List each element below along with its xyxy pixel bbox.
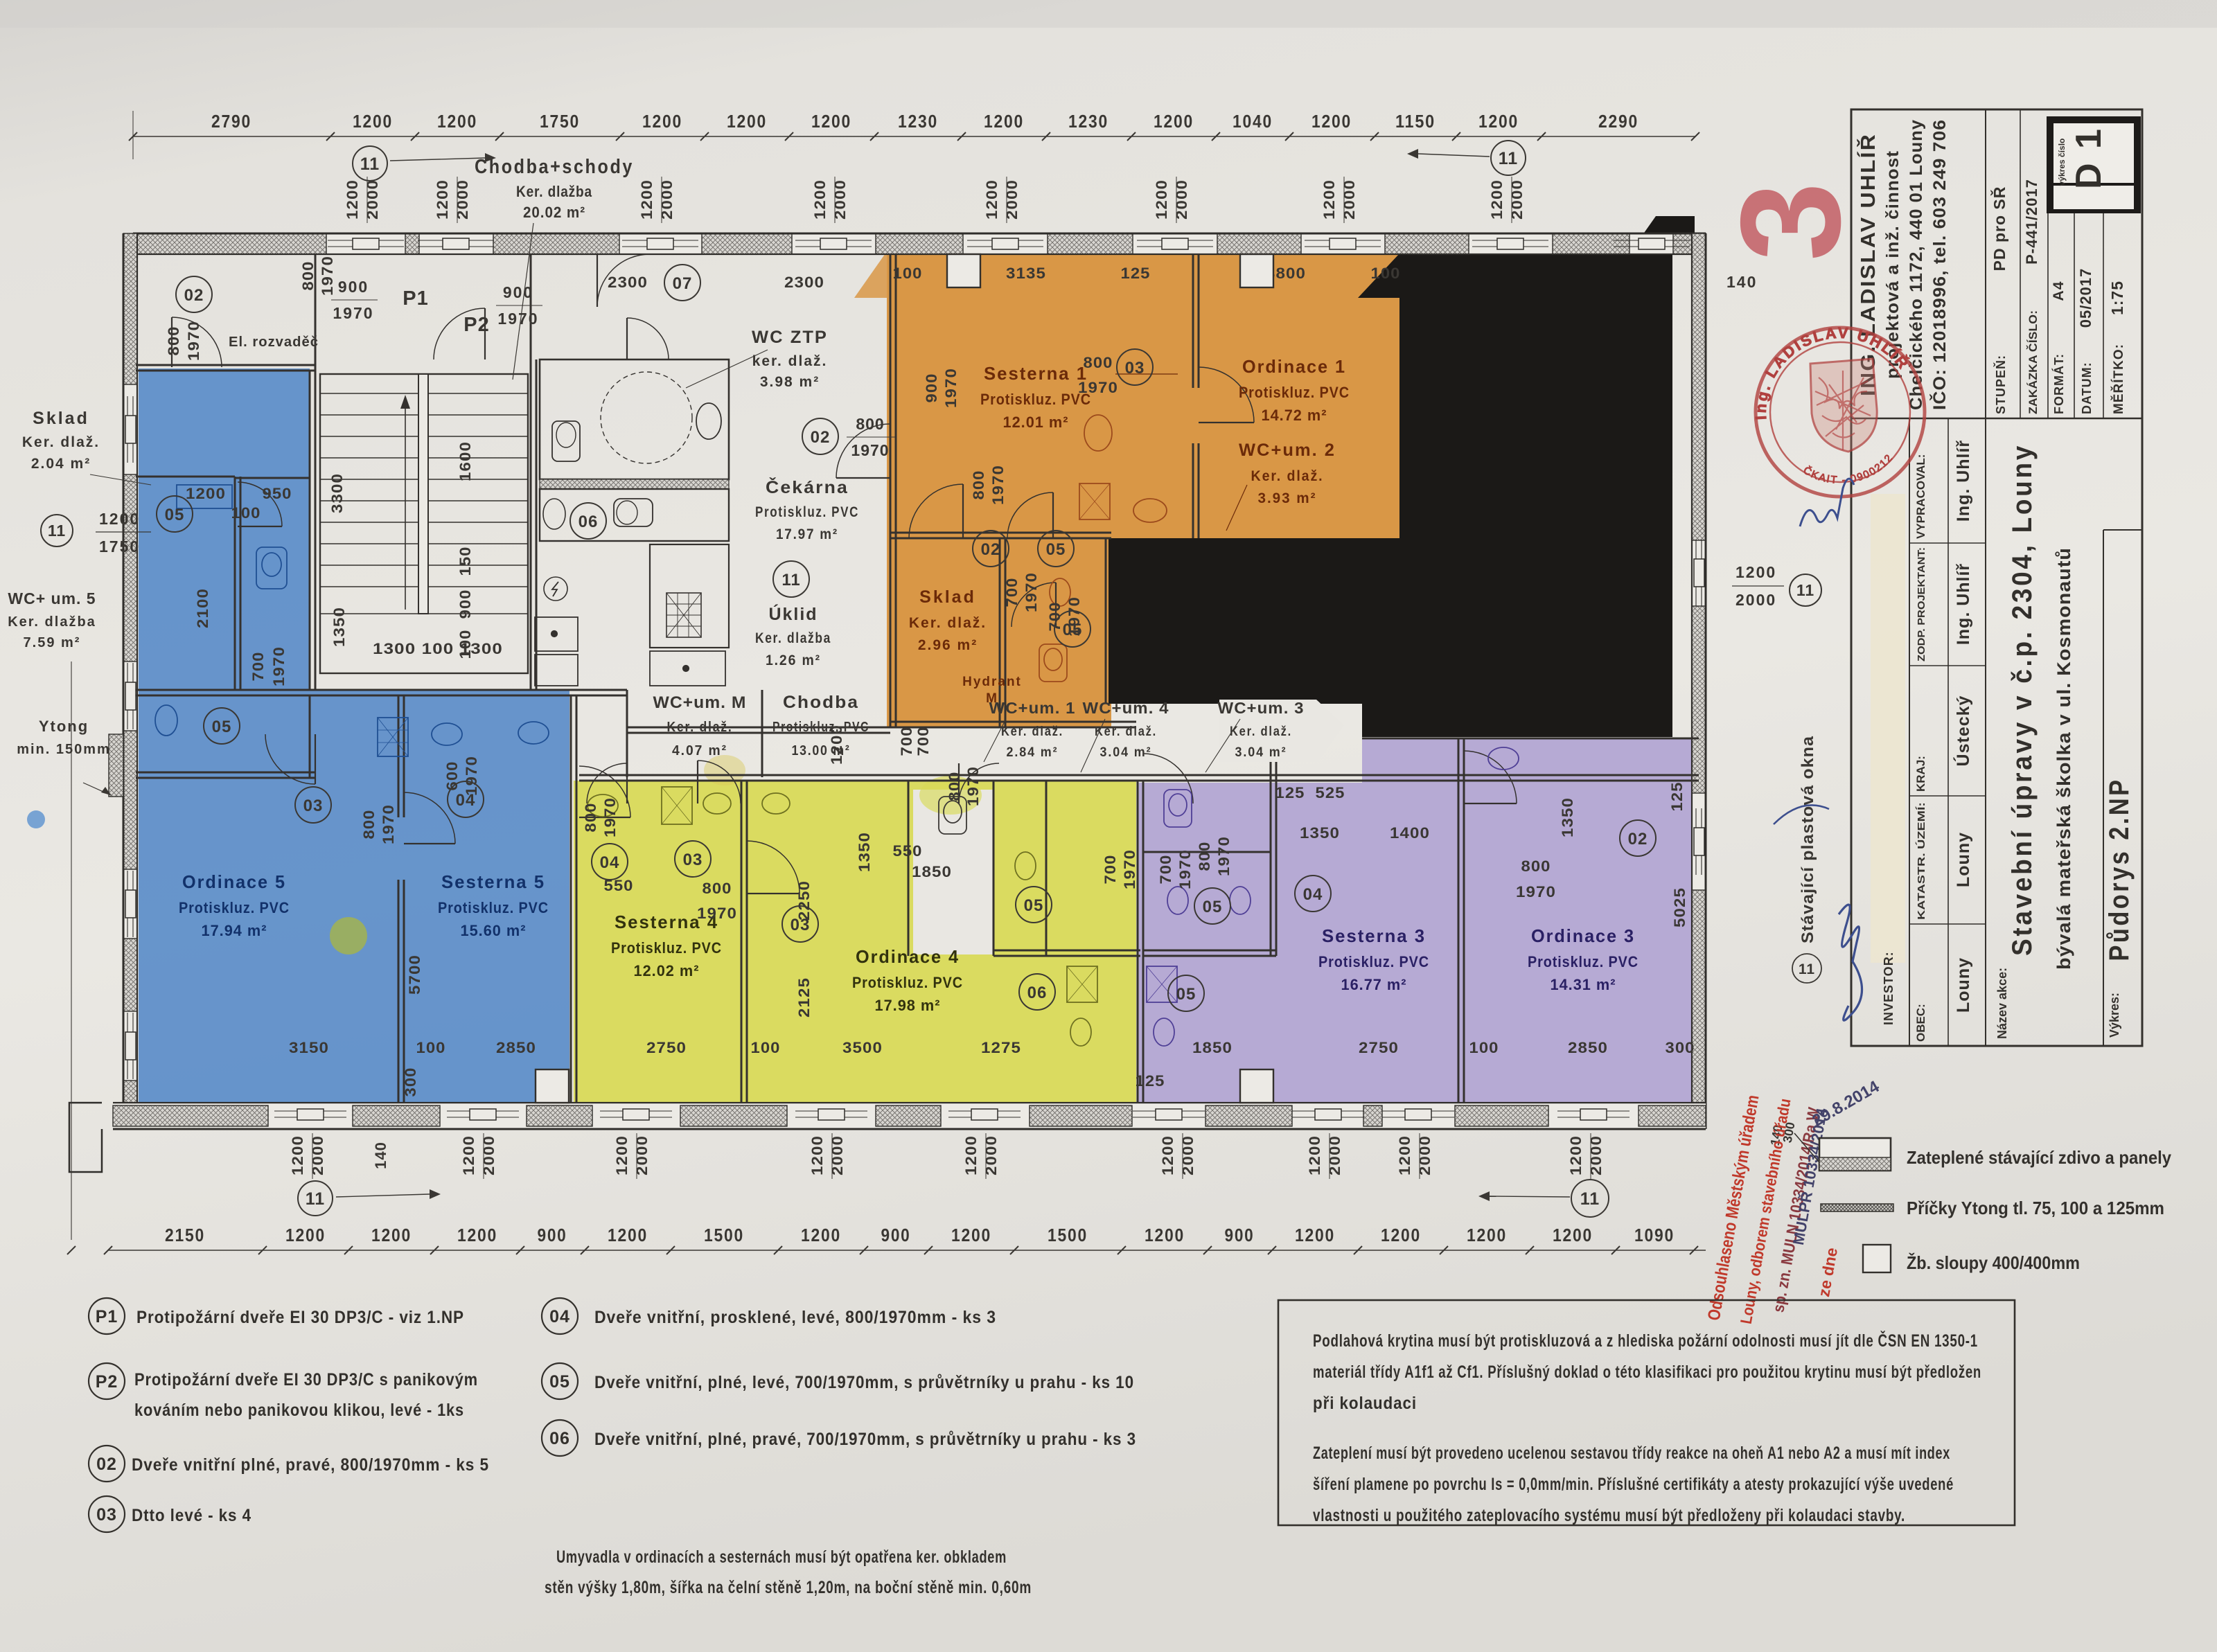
- svg-text:1200: 1200: [1311, 111, 1352, 132]
- svg-text:2000: 2000: [480, 1135, 497, 1175]
- svg-text:1200: 1200: [460, 1135, 477, 1175]
- svg-text:7.59 m²: 7.59 m²: [24, 635, 81, 650]
- svg-text:900: 900: [503, 283, 533, 301]
- svg-text:1970: 1970: [380, 804, 397, 844]
- svg-text:2.96 m²: 2.96 m²: [918, 637, 978, 653]
- svg-text:1200: 1200: [608, 1225, 648, 1245]
- svg-text:03: 03: [1125, 359, 1145, 378]
- svg-text:1350: 1350: [856, 832, 873, 872]
- svg-text:4.07 m²: 4.07 m²: [672, 743, 727, 758]
- svg-text:2850: 2850: [496, 1039, 536, 1056]
- svg-text:900: 900: [538, 1225, 567, 1245]
- svg-text:IČO: 12018996, tel. 603 249 70: IČO: 12018996, tel. 603 249 706: [1929, 119, 1950, 410]
- svg-text:vlastnosti u použitého zateplo: vlastnosti u použitého zateplovacího sys…: [1313, 1506, 1905, 1525]
- svg-text:11: 11: [1580, 1189, 1600, 1209]
- svg-text:1970: 1970: [1078, 379, 1118, 396]
- svg-text:100: 100: [231, 504, 261, 522]
- svg-text:05: 05: [549, 1372, 570, 1392]
- svg-text:Protipožární dveře EI 30 DP3/C: Protipožární dveře EI 30 DP3/C s panikov…: [134, 1370, 478, 1389]
- svg-text:Protipožární dveře EI 30 DP3/C: Protipožární dveře EI 30 DP3/C - viz 1.N…: [136, 1308, 464, 1327]
- svg-text:700: 700: [1157, 855, 1174, 885]
- svg-text:2000: 2000: [1173, 179, 1190, 220]
- svg-text:3: 3: [1711, 182, 1870, 261]
- svg-text:DATUM:: DATUM:: [2080, 362, 2094, 414]
- svg-text:2000: 2000: [633, 1135, 651, 1175]
- svg-text:600: 600: [443, 761, 461, 791]
- svg-text:STUPEŇ:: STUPEŇ:: [1993, 355, 2008, 414]
- svg-text:3500: 3500: [842, 1039, 883, 1056]
- svg-text:Ker. dlaž.: Ker. dlaž.: [1095, 725, 1157, 739]
- svg-text:700: 700: [915, 727, 932, 756]
- svg-text:1200: 1200: [353, 111, 393, 132]
- svg-text:11: 11: [306, 1189, 325, 1209]
- svg-text:D 1: D 1: [2069, 127, 2109, 189]
- svg-text:2250: 2250: [795, 880, 813, 921]
- svg-text:Louny: Louny: [1954, 832, 1973, 887]
- svg-text:02: 02: [184, 286, 204, 305]
- svg-text:2750: 2750: [1359, 1039, 1399, 1056]
- svg-text:2000: 2000: [1003, 179, 1021, 220]
- svg-text:1150: 1150: [1395, 111, 1436, 132]
- svg-text:1200: 1200: [344, 179, 361, 220]
- svg-text:02: 02: [811, 428, 831, 447]
- svg-text:700: 700: [1102, 855, 1119, 885]
- svg-text:11: 11: [1499, 149, 1518, 168]
- svg-text:ING. LADISLAV UHLÍŘ: ING. LADISLAV UHLÍŘ: [1856, 133, 1880, 396]
- svg-text:06: 06: [578, 513, 599, 531]
- svg-text:100: 100: [416, 1039, 446, 1056]
- svg-text:Protiskluz. PVC: Protiskluz. PVC: [1318, 953, 1429, 970]
- svg-text:05: 05: [1203, 898, 1223, 916]
- svg-text:Sklad: Sklad: [33, 409, 89, 428]
- svg-text:125: 125: [1136, 1072, 1165, 1090]
- svg-text:1200: 1200: [99, 510, 140, 528]
- svg-text:1230: 1230: [898, 111, 938, 132]
- svg-text:Příčky Ytong tl. 75, 100 a 125: Příčky Ytong tl. 75, 100 a 125mm: [1907, 1198, 2164, 1218]
- svg-text:1970: 1970: [185, 321, 202, 361]
- svg-text:1230: 1230: [1068, 111, 1108, 132]
- svg-text:07: 07: [673, 274, 693, 293]
- svg-text:800: 800: [1196, 842, 1213, 871]
- svg-text:800: 800: [970, 470, 987, 500]
- svg-text:1350: 1350: [1300, 824, 1340, 842]
- svg-text:700: 700: [898, 727, 915, 756]
- svg-text:1200: 1200: [809, 1135, 826, 1175]
- svg-text:Chodba+schody: Chodba+schody: [475, 156, 634, 178]
- svg-text:12.01 m²: 12.01 m²: [1003, 414, 1069, 431]
- svg-text:1300 100 1300: 1300 100 1300: [373, 640, 503, 657]
- svg-text:2000: 2000: [1735, 591, 1776, 609]
- svg-text:Sesterna 5: Sesterna 5: [441, 871, 545, 892]
- svg-text:5700: 5700: [406, 954, 423, 995]
- svg-text:1200: 1200: [1153, 179, 1170, 220]
- svg-text:06: 06: [1027, 984, 1048, 1002]
- svg-text:Ker. dlaž.: Ker. dlaž.: [1251, 468, 1324, 484]
- svg-text:1090: 1090: [1634, 1225, 1675, 1245]
- svg-text:04: 04: [549, 1307, 570, 1326]
- svg-text:při kolaudaci: při kolaudaci: [1313, 1394, 1417, 1413]
- svg-text:1970: 1970: [851, 441, 889, 459]
- svg-text:3.98 m²: 3.98 m²: [760, 374, 820, 390]
- svg-text:300: 300: [1666, 1039, 1695, 1056]
- svg-text:El. rozvaděč: El. rozvaděč: [229, 335, 319, 350]
- svg-text:2850: 2850: [1568, 1039, 1608, 1056]
- svg-text:Sesterna 3: Sesterna 3: [1322, 925, 1426, 946]
- svg-text:Ker. dlaž.: Ker. dlaž.: [909, 615, 987, 631]
- svg-text:OBEC:: OBEC:: [1914, 1004, 1927, 1042]
- svg-text:1970: 1970: [1215, 836, 1233, 876]
- svg-text:stěn výšky 1,80m, šířka na čel: stěn výšky 1,80m, šířka na čelní stěně 1…: [545, 1578, 1032, 1597]
- svg-text:1200: 1200: [434, 179, 451, 220]
- svg-text:300: 300: [402, 1067, 419, 1097]
- svg-text:1200: 1200: [1321, 179, 1338, 220]
- svg-text:20.02 m²: 20.02 m²: [523, 204, 585, 221]
- svg-text:WC+um. 3: WC+um. 3: [1218, 699, 1305, 717]
- svg-text:MĚŘÍTKO:: MĚŘÍTKO:: [2111, 344, 2126, 414]
- svg-text:125: 125: [1668, 782, 1686, 812]
- svg-text:1200: 1200: [1478, 111, 1519, 132]
- svg-text:140: 140: [372, 1142, 389, 1169]
- svg-text:Protiskluz. PVC: Protiskluz. PVC: [438, 899, 549, 916]
- svg-text:P2: P2: [463, 314, 489, 336]
- svg-text:14.72 m²: 14.72 m²: [1262, 407, 1327, 424]
- svg-text:Půdorys 2.NP: Půdorys 2.NP: [2104, 778, 2135, 961]
- svg-text:17.98 m²: 17.98 m²: [875, 997, 941, 1014]
- svg-text:Protiskluz. PVC: Protiskluz. PVC: [852, 974, 963, 991]
- svg-text:Ker. dlažba: Ker. dlažba: [755, 630, 831, 646]
- svg-text:Stavební úpravy v č.p. 2304, L: Stavební úpravy v č.p. 2304, Louny: [2007, 443, 2038, 956]
- svg-text:1200: 1200: [828, 725, 845, 765]
- svg-text:Dveře vnitřní, prosklené, levé: Dveře vnitřní, prosklené, levé, 800/1970…: [594, 1308, 996, 1327]
- svg-text:1970: 1970: [463, 756, 480, 796]
- svg-text:1200: 1200: [613, 1135, 630, 1175]
- svg-text:P2: P2: [96, 1372, 118, 1392]
- svg-text:1850: 1850: [1192, 1039, 1233, 1056]
- svg-text:800: 800: [299, 261, 317, 291]
- svg-text:125: 125: [1275, 784, 1305, 801]
- svg-text:1200: 1200: [642, 111, 682, 132]
- svg-text:1200: 1200: [1295, 1225, 1335, 1245]
- svg-text:1970: 1970: [333, 304, 373, 322]
- svg-text:2300: 2300: [784, 274, 824, 291]
- svg-text:2300: 2300: [608, 274, 648, 291]
- svg-text:WC+um. 1: WC+um. 1: [989, 699, 1076, 717]
- svg-text:Dveře vnitřní, plné, pravé, 70: Dveře vnitřní, plné, pravé, 700/1970mm, …: [594, 1430, 1136, 1449]
- svg-text:Sesterna 1: Sesterna 1: [984, 363, 1088, 384]
- svg-text:1200: 1200: [984, 111, 1024, 132]
- svg-text:3300: 3300: [328, 473, 346, 513]
- svg-text:P1: P1: [403, 287, 428, 310]
- svg-text:min. 150mm: min. 150mm: [17, 742, 111, 757]
- svg-text:Ing. Uhlíř: Ing. Uhlíř: [1954, 440, 1973, 522]
- svg-text:Protiskluz. PVC: Protiskluz. PVC: [980, 391, 1091, 408]
- svg-text:2790: 2790: [211, 111, 251, 132]
- svg-text:ker. dlaž.: ker. dlaž.: [752, 353, 828, 369]
- svg-text:1400: 1400: [1390, 824, 1430, 842]
- svg-text:2.84 m²: 2.84 m²: [1007, 745, 1059, 760]
- svg-text:WC+um. 2: WC+um. 2: [1239, 441, 1336, 460]
- svg-text:140: 140: [1726, 273, 1757, 291]
- svg-text:11: 11: [1799, 961, 1815, 977]
- svg-text:ZODP. PROJEKTANT:: ZODP. PROJEKTANT:: [1916, 547, 1927, 661]
- svg-text:Ordinace 5: Ordinace 5: [182, 871, 286, 892]
- svg-text:2000: 2000: [1179, 1135, 1196, 1175]
- svg-text:100: 100: [751, 1039, 781, 1056]
- svg-text:1200: 1200: [1159, 1135, 1176, 1175]
- svg-text:2000: 2000: [829, 1135, 846, 1175]
- svg-text:Ordinace 3: Ordinace 3: [1531, 925, 1635, 946]
- svg-text:Protiskluz. PVC: Protiskluz. PVC: [772, 720, 869, 735]
- svg-text:Stávající plastová okna: Stávající plastová okna: [1799, 736, 1817, 943]
- svg-text:ZAKÁZKA ČÍSLO:: ZAKÁZKA ČÍSLO:: [2026, 310, 2040, 414]
- svg-text:100: 100: [1371, 265, 1401, 282]
- svg-text:Ker. dlažba: Ker. dlažba: [516, 183, 592, 200]
- svg-text:3135: 3135: [1006, 265, 1046, 282]
- svg-text:1970: 1970: [942, 368, 960, 408]
- svg-text:Protiskluz. PVC: Protiskluz. PVC: [179, 899, 290, 916]
- svg-text:Ker. dlaž.: Ker. dlaž.: [1001, 725, 1063, 739]
- svg-text:kováním nebo panikovou klikou,: kováním nebo panikovou klikou, levé - 1k…: [134, 1401, 464, 1420]
- svg-text:11: 11: [48, 522, 66, 540]
- svg-text:2000: 2000: [1416, 1135, 1433, 1175]
- svg-text:materiál třídy A1f1 až Cf1. Př: materiál třídy A1f1 až Cf1. Příslušný do…: [1313, 1362, 1981, 1382]
- svg-text:1200: 1200: [811, 179, 829, 220]
- svg-text:1850: 1850: [912, 863, 952, 880]
- svg-text:Sklad: Sklad: [919, 587, 976, 607]
- svg-text:2000: 2000: [1341, 179, 1358, 220]
- svg-text:900: 900: [338, 278, 369, 296]
- svg-text:Výkres:: Výkres:: [2108, 993, 2121, 1038]
- svg-text:1200: 1200: [1306, 1135, 1323, 1175]
- svg-text:Protiskluz. PVC: Protiskluz. PVC: [1528, 953, 1639, 970]
- svg-text:1350: 1350: [1559, 797, 1576, 837]
- svg-text:Dveře vnitřní, plné, levé, 700: Dveře vnitřní, plné, levé, 700/1970mm, s…: [594, 1373, 1134, 1392]
- svg-text:05/2017: 05/2017: [2077, 268, 2094, 328]
- svg-text:1500: 1500: [1048, 1225, 1088, 1245]
- svg-text:1970: 1970: [964, 766, 982, 806]
- svg-text:2.04 m²: 2.04 m²: [31, 456, 91, 472]
- svg-text:11: 11: [1796, 581, 1814, 599]
- svg-text:KRAJ:: KRAJ:: [1914, 756, 1927, 792]
- svg-text:1970: 1970: [1023, 572, 1040, 612]
- svg-text:1200: 1200: [285, 1225, 326, 1245]
- svg-text:výkres číslo: výkres číslo: [2057, 139, 2067, 186]
- svg-text:Žb. sloupy 400/400mm: Žb. sloupy 400/400mm: [1907, 1252, 2080, 1273]
- svg-text:100: 100: [893, 265, 923, 282]
- svg-text:125: 125: [1121, 265, 1151, 282]
- svg-text:1970: 1970: [319, 256, 336, 296]
- svg-text:900: 900: [457, 589, 474, 619]
- svg-text:800: 800: [703, 880, 732, 897]
- svg-text:1500: 1500: [704, 1225, 744, 1245]
- svg-text:800: 800: [360, 810, 378, 840]
- svg-text:WC+ um. 5: WC+ um. 5: [8, 589, 96, 607]
- svg-text:150: 150: [457, 547, 474, 576]
- svg-text:1200: 1200: [1145, 1225, 1185, 1245]
- svg-text:900: 900: [1225, 1225, 1255, 1245]
- svg-text:1970: 1970: [270, 646, 288, 686]
- svg-text:1970: 1970: [1176, 849, 1194, 889]
- svg-text:2000: 2000: [309, 1135, 326, 1175]
- svg-text:900: 900: [881, 1225, 911, 1245]
- svg-text:05: 05: [1046, 540, 1066, 559]
- svg-text:1970: 1970: [1121, 849, 1138, 889]
- svg-text:2000: 2000: [1326, 1135, 1343, 1175]
- svg-text:950: 950: [263, 485, 292, 502]
- svg-text:1200: 1200: [1467, 1225, 1507, 1245]
- svg-text:Úklid: Úklid: [768, 603, 818, 624]
- svg-text:1200: 1200: [1553, 1225, 1593, 1245]
- svg-text:5025: 5025: [1671, 887, 1688, 927]
- svg-text:1200: 1200: [983, 179, 1000, 220]
- svg-text:1200: 1200: [962, 1135, 980, 1175]
- svg-text:17.97 m²: 17.97 m²: [776, 526, 838, 542]
- svg-text:PD pro SŘ: PD pro SŘ: [1990, 186, 2008, 272]
- svg-text:Dtto levé - ks 4: Dtto levé - ks 4: [132, 1506, 251, 1525]
- svg-text:800: 800: [856, 415, 884, 433]
- svg-text:2000: 2000: [454, 179, 471, 220]
- svg-text:1750: 1750: [540, 111, 580, 132]
- svg-text:11: 11: [360, 154, 380, 174]
- svg-text:1970: 1970: [601, 797, 619, 837]
- svg-text:3.93 m²: 3.93 m²: [1258, 490, 1317, 506]
- svg-text:100: 100: [1469, 1039, 1499, 1056]
- svg-text:3.04 m²: 3.04 m²: [1235, 745, 1287, 760]
- svg-text:bývalá mateřská školka v ul. K: bývalá mateřská školka v ul. Kosmonautů: [2053, 547, 2074, 970]
- svg-text:1970: 1970: [1516, 883, 1556, 900]
- svg-text:1750: 1750: [99, 538, 140, 556]
- svg-text:1200: 1200: [727, 111, 767, 132]
- svg-text:03: 03: [683, 851, 703, 869]
- svg-text:šíření plamene po povrchu Is: šíření plamene po povrchu Is = 0,0mm/min…: [1313, 1475, 1954, 1494]
- svg-text:2000: 2000: [364, 179, 381, 220]
- svg-text:550: 550: [604, 877, 634, 894]
- svg-text:900: 900: [923, 373, 940, 403]
- svg-text:1200: 1200: [186, 485, 226, 502]
- svg-text:02: 02: [1628, 830, 1648, 849]
- svg-text:03: 03: [303, 797, 324, 815]
- svg-text:WC ZTP: WC ZTP: [752, 328, 828, 347]
- svg-text:Ordinace 1: Ordinace 1: [1242, 356, 1346, 377]
- svg-text:525: 525: [1316, 784, 1345, 801]
- svg-text:Ordinace 4: Ordinace 4: [856, 946, 960, 967]
- svg-text:INVESTOR:: INVESTOR:: [1882, 951, 1896, 1025]
- svg-text:800: 800: [946, 772, 963, 801]
- svg-text:1970: 1970: [497, 310, 538, 328]
- svg-text:Protiskluz. PVC: Protiskluz. PVC: [755, 504, 859, 520]
- svg-text:05: 05: [1176, 985, 1196, 1004]
- svg-text:Protiskluz. PVC: Protiskluz. PVC: [1239, 384, 1350, 401]
- svg-text:Ker. dlaž.: Ker. dlaž.: [667, 720, 733, 735]
- svg-text:1200: 1200: [289, 1135, 306, 1175]
- svg-text:550: 550: [893, 842, 923, 860]
- svg-text:1200: 1200: [801, 1225, 841, 1245]
- svg-text:04: 04: [1303, 885, 1323, 904]
- svg-text:1:75: 1:75: [2108, 281, 2126, 315]
- svg-text:Zateplené stávající zdivo a pa: Zateplené stávající zdivo a panely: [1907, 1147, 2171, 1168]
- svg-text:Ker. dlaž.: Ker. dlaž.: [22, 434, 100, 450]
- svg-text:Louny: Louny: [1954, 957, 1973, 1013]
- svg-text:800: 800: [582, 803, 599, 833]
- svg-text:1200: 1200: [457, 1225, 497, 1245]
- svg-text:1200: 1200: [638, 179, 655, 220]
- svg-text:05: 05: [1024, 896, 1044, 915]
- svg-text:1200: 1200: [1735, 563, 1776, 581]
- svg-text:Ker. dlažba: Ker. dlažba: [8, 614, 96, 630]
- svg-text:11: 11: [781, 571, 800, 589]
- svg-text:2000: 2000: [658, 179, 675, 220]
- svg-text:2000: 2000: [831, 179, 849, 220]
- svg-text:2000: 2000: [982, 1135, 1000, 1175]
- svg-text:17.94 m²: 17.94 m²: [202, 922, 267, 939]
- svg-text:Ker. dlaž.: Ker. dlaž.: [1230, 725, 1292, 739]
- svg-text:2150: 2150: [165, 1225, 205, 1245]
- svg-text:12.02 m²: 12.02 m²: [634, 962, 700, 979]
- svg-text:1200: 1200: [951, 1225, 991, 1245]
- svg-text:700: 700: [249, 652, 267, 682]
- svg-text:05: 05: [165, 506, 185, 524]
- svg-text:2000: 2000: [1508, 179, 1526, 220]
- svg-text:05: 05: [212, 718, 232, 736]
- svg-text:1275: 1275: [981, 1039, 1021, 1056]
- svg-text:1600: 1600: [457, 441, 474, 481]
- svg-text:16.77 m²: 16.77 m²: [1341, 976, 1407, 993]
- svg-text:800: 800: [1521, 858, 1551, 875]
- svg-text:1200: 1200: [1154, 111, 1194, 132]
- svg-text:Podlahová krytina musí být pro: Podlahová krytina musí být protiskluzová…: [1313, 1330, 1978, 1351]
- svg-text:P1: P1: [96, 1307, 118, 1326]
- svg-text:Ing. Uhlíř: Ing. Uhlíř: [1954, 563, 1973, 645]
- svg-text:2000: 2000: [1587, 1135, 1605, 1175]
- svg-text:2290: 2290: [1598, 111, 1639, 132]
- svg-text:1970: 1970: [1066, 596, 1083, 637]
- svg-text:1200: 1200: [1396, 1135, 1413, 1175]
- svg-text:3.04 m²: 3.04 m²: [1100, 745, 1152, 760]
- svg-text:03: 03: [96, 1505, 117, 1525]
- svg-text:Čekárna: Čekárna: [766, 477, 849, 497]
- svg-text:1970: 1970: [989, 465, 1007, 505]
- svg-text:2750: 2750: [646, 1039, 687, 1056]
- svg-text:700: 700: [1003, 578, 1021, 607]
- svg-text:1200: 1200: [1488, 179, 1505, 220]
- svg-text:1350: 1350: [330, 607, 348, 647]
- svg-text:Chodba: Chodba: [783, 693, 859, 712]
- svg-text:1040: 1040: [1233, 111, 1273, 132]
- svg-text:FORMÁT:: FORMÁT:: [2051, 353, 2066, 414]
- svg-text:02: 02: [96, 1455, 117, 1474]
- svg-text:WC+um. M: WC+um. M: [653, 693, 747, 712]
- svg-text:3150: 3150: [289, 1039, 329, 1056]
- svg-text:1200: 1200: [811, 111, 851, 132]
- svg-text:KATASTR. ÚZEMÍ:: KATASTR. ÚZEMÍ:: [1915, 802, 1927, 920]
- svg-text:02: 02: [981, 540, 1001, 559]
- svg-text:800: 800: [1084, 354, 1113, 371]
- svg-text:WC+um. 4: WC+um. 4: [1083, 699, 1169, 717]
- svg-text:Umyvadla v ordinacích a sester: Umyvadla v ordinacích a sesternách musí …: [556, 1547, 1007, 1567]
- svg-text:Zateplení musí být provedeno u: Zateplení musí být provedeno ucelenou se…: [1313, 1444, 1950, 1463]
- svg-text:15.60 m²: 15.60 m²: [461, 922, 527, 939]
- svg-text:Hydrant: Hydrant: [962, 675, 1022, 689]
- svg-text:1200: 1200: [1381, 1225, 1421, 1245]
- svg-text:2125: 2125: [795, 977, 813, 1018]
- svg-text:A4: A4: [2051, 281, 2067, 301]
- svg-text:Ústecký: Ústecký: [1952, 695, 1973, 767]
- svg-text:1200: 1200: [437, 111, 477, 132]
- svg-text:2100: 2100: [194, 588, 211, 628]
- svg-text:Dveře vnitřní plné, pravé, 800: Dveře vnitřní plné, pravé, 800/1970mm - …: [132, 1455, 489, 1475]
- svg-text:1200: 1200: [1567, 1135, 1584, 1175]
- svg-text:1.26 m²: 1.26 m²: [766, 652, 821, 668]
